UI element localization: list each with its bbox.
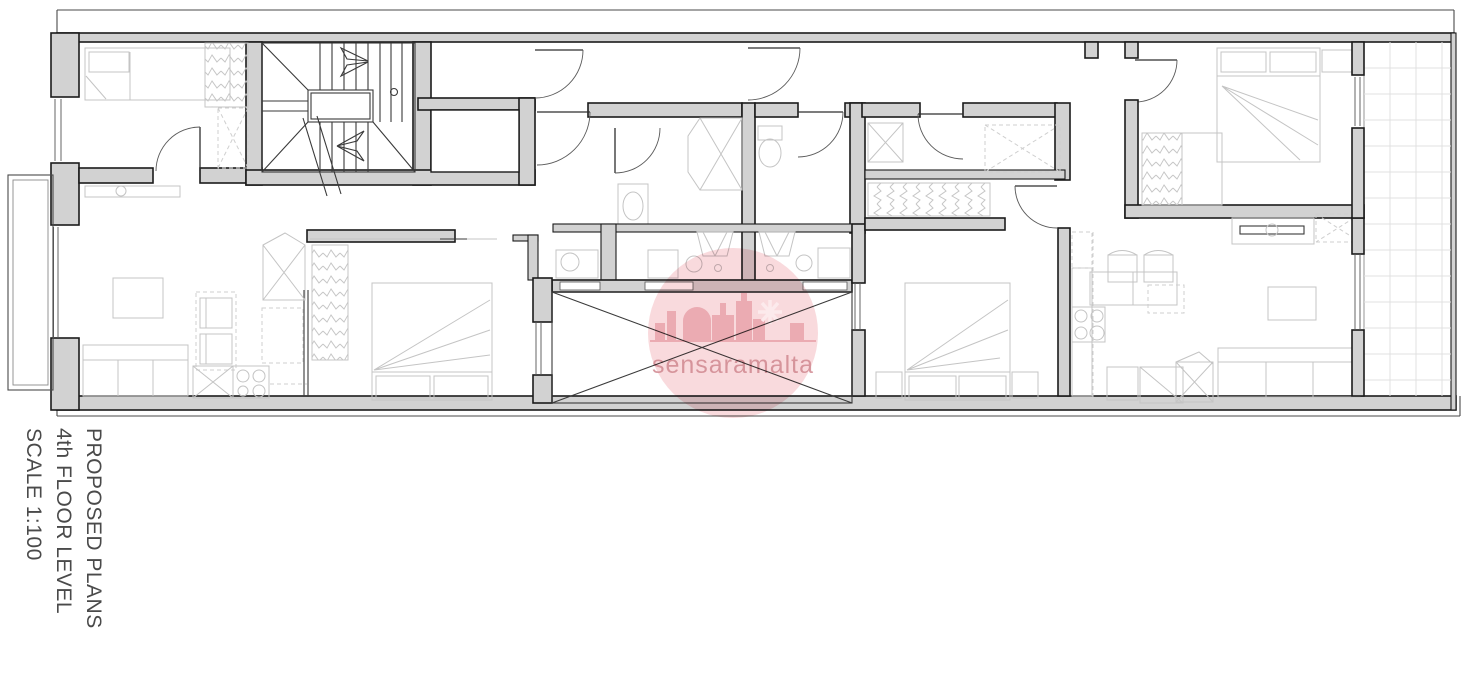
double-bed xyxy=(905,283,1010,400)
floor-plan-drawing: sensaramalta xyxy=(0,0,1466,672)
bedroom-3 xyxy=(865,218,1038,400)
door-bedroom1 xyxy=(156,127,200,171)
stair-direction-arrows xyxy=(337,48,368,161)
plan-title: PROPOSED PLANS xyxy=(78,428,108,673)
wardrobe-icon xyxy=(1142,133,1182,205)
double-bed xyxy=(372,283,492,400)
balcony xyxy=(8,175,53,390)
stove-icon xyxy=(233,366,269,398)
wardrobe-icon xyxy=(205,43,248,107)
living-room-left xyxy=(83,186,236,396)
lift-shaft xyxy=(418,98,535,185)
closet xyxy=(218,108,248,168)
kitchen-left xyxy=(193,233,307,398)
walk-in-wardrobe xyxy=(868,183,990,216)
floor-level-label: 4th FLOOR LEVEL xyxy=(48,428,78,673)
kitchen-right xyxy=(1058,228,1184,403)
wardrobe-icon xyxy=(312,245,348,360)
living-room-right xyxy=(1176,214,1364,402)
corridor-doors xyxy=(535,42,1177,102)
title-block: PROPOSED PLANS 4th FLOOR LEVEL SCALE 1:1… xyxy=(18,428,108,673)
stove-icon xyxy=(1072,307,1105,342)
terrace xyxy=(1364,42,1451,396)
bedroom-4 xyxy=(1142,42,1364,218)
bedroom-1 xyxy=(79,42,262,185)
bar-stools xyxy=(1108,251,1184,314)
double-bed xyxy=(1217,48,1320,162)
scale-label: SCALE 1:100 xyxy=(18,428,48,673)
bathroom-c xyxy=(868,123,1060,172)
watermark-text: sensaramalta xyxy=(652,351,814,379)
bathroom-b xyxy=(758,126,782,167)
sofa xyxy=(1218,348,1360,397)
watermark: sensaramalta xyxy=(648,248,818,418)
watermark-star-icon xyxy=(758,300,782,324)
wardrobe-icon xyxy=(868,183,990,216)
floor-plan-sheet: sensaramalta PROPOSED PLANS 4th FLOOR LE… xyxy=(0,0,1466,672)
sofa xyxy=(83,345,188,396)
bathroom-a xyxy=(618,118,742,228)
bedroom-2 xyxy=(304,230,497,400)
